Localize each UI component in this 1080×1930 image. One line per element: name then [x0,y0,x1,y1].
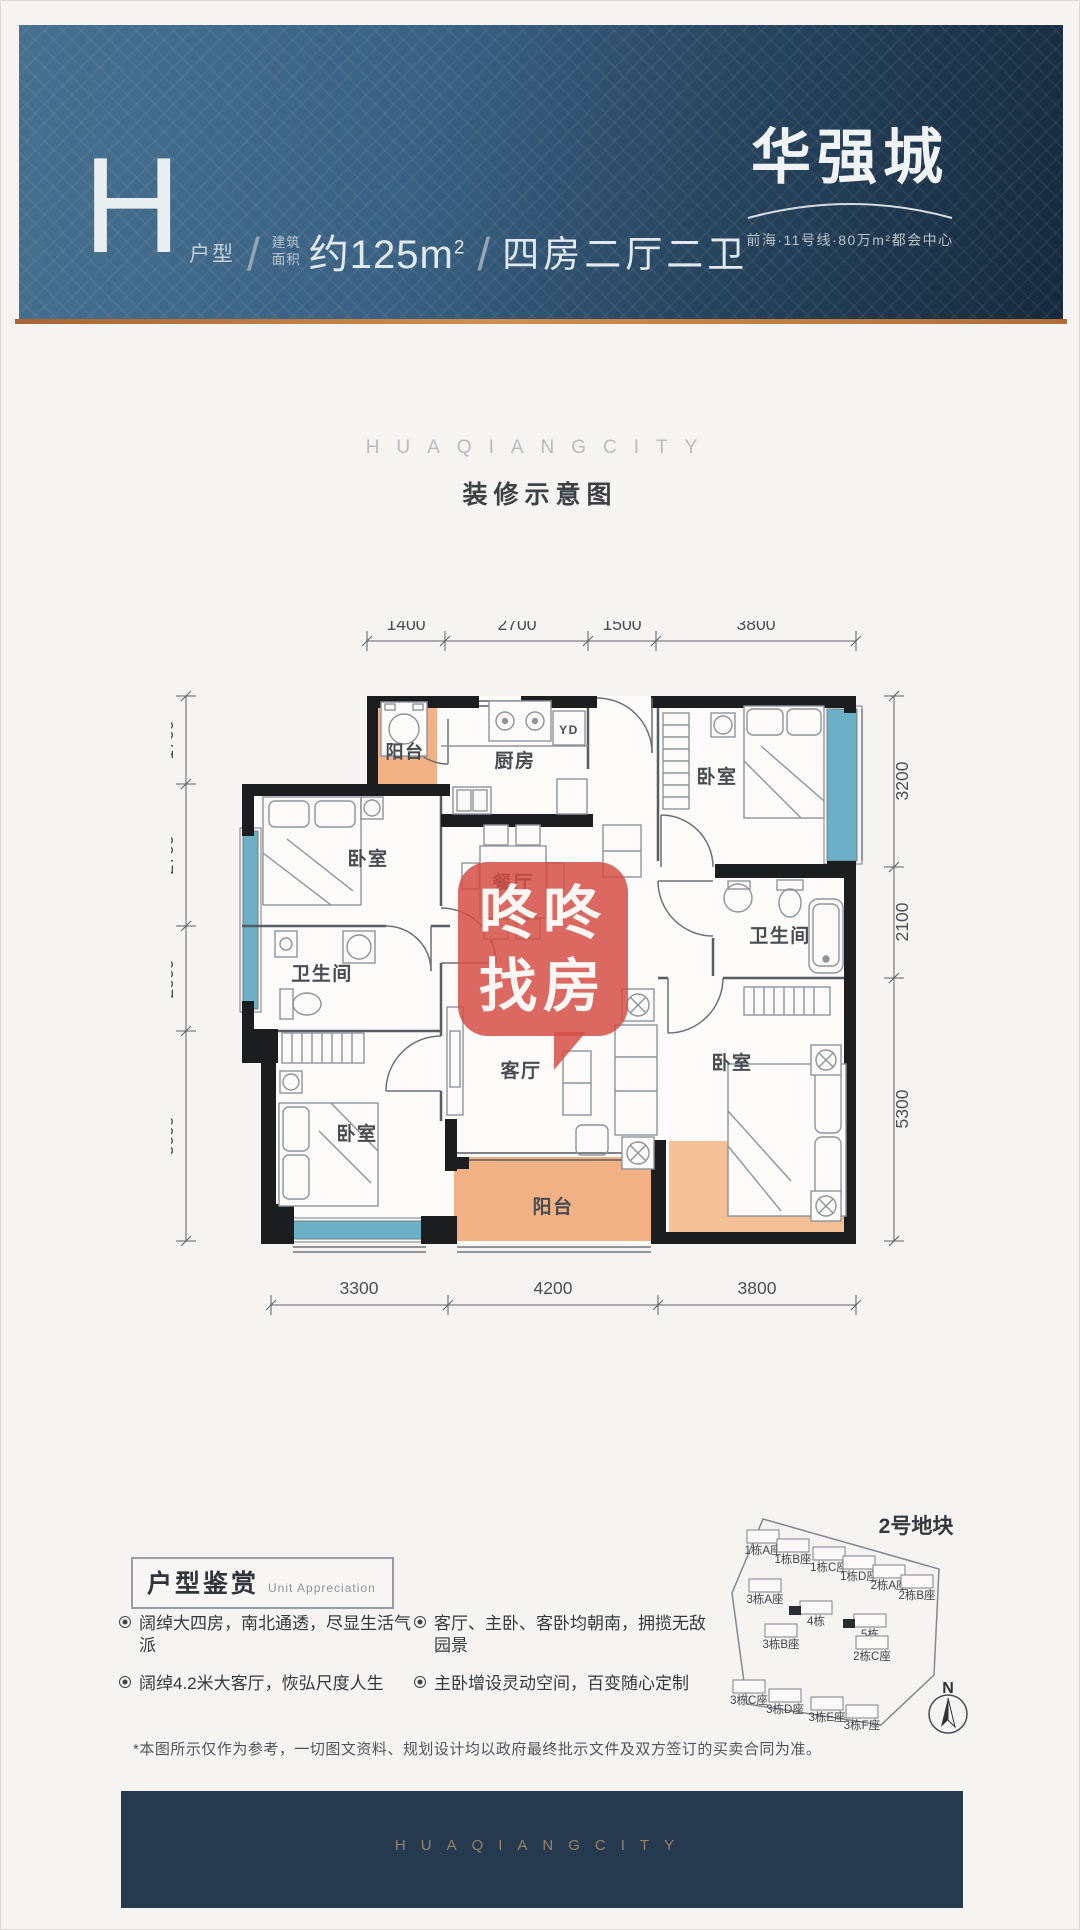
building-label: 4栋 [807,1614,825,1628]
area-label-line1: 建筑 [272,234,301,252]
room-label: 卫生间 [749,924,811,947]
building-label: 3栋B座 [762,1637,799,1651]
site-plan-title: 2号地块 [879,1514,955,1538]
feature-bullet: 阔绰4.2米大客厅，恢弘尺度人生 [119,1673,414,1695]
dimension-label: 2700 [498,621,537,634]
bullet-text: 阔绰大四房，南北通透，尽显生活气派 [139,1613,414,1657]
dimension-label: 3800 [738,1278,777,1298]
appreciation-box: 户型鉴赏 Unit Appreciation [131,1557,394,1609]
brand-tagline: 前海·11号线·80万m²都会中心 [695,230,1005,250]
appreciation-subtitle: Unit Appreciation [268,1581,376,1595]
dimension-label: 3800 [737,621,776,634]
divider-rule [15,319,1067,324]
watermark-bubble: 咚咚 找房 [458,862,628,1036]
room-label: 厨房 [494,749,535,772]
building-footprint [901,1575,933,1588]
bullet-icon [414,1676,426,1688]
building-label: 3栋D座 [766,1702,804,1716]
building-footprint [843,1556,875,1569]
feature-bullet: 客厅、主卧、客卧均朝南，拥揽无敌园景 [414,1613,709,1657]
footer-banner: HUAQIANGCITY [121,1791,963,1908]
dimension-label: 3600 [171,1116,177,1155]
building-footprint [777,1539,809,1552]
unit-type-label: 户型 [189,238,235,275]
header-banner: H 户型 / 建筑 面积 约125m2 / 四房二厅二卫 华强城 前海·11号线… [19,25,1063,319]
building-label: 2栋B座 [898,1588,935,1602]
area-label: 建筑 面积 [272,234,301,275]
bullet-icon [119,1676,131,1688]
building-footprint [749,1579,781,1592]
brand-watermark-en: HUAQIANGCITY [1,437,1079,459]
building-footprint [765,1624,797,1637]
room-label: 阳台 [386,741,425,762]
dimension-label: 2100 [892,902,912,941]
bullet-text: 阔绰4.2米大客厅，恢弘尺度人生 [139,1673,384,1695]
building-footprint [733,1680,765,1693]
area-exponent: 2 [454,238,466,259]
room-label: 卧室 [711,1051,752,1074]
building-footprint [811,1697,843,1710]
building-footprint [854,1614,886,1627]
bullet-icon [119,1616,131,1628]
area-value: 约125m2 [309,235,466,275]
dimension-label: 3300 [340,1278,379,1298]
building-label: 3栋A座 [746,1592,783,1606]
room-label: 客厅 [500,1059,541,1082]
watermark-line1: 咚咚 [458,878,628,951]
dimension-label: 4200 [534,1278,573,1298]
room-label: YD [559,723,579,737]
building-footprint [800,1601,832,1614]
building-footprint [846,1705,878,1718]
building-footprint [747,1530,779,1543]
room-label: 卧室 [347,847,388,870]
watermark-tail [554,1032,586,1070]
room-label: 卫生间 [291,962,353,985]
bullet-text: 客厅、主卧、客卧均朝南，拥揽无敌园景 [434,1613,709,1657]
brand-arc-icon [740,198,960,222]
dimension-label: 1400 [387,621,426,634]
dimension-label: 5300 [892,1089,912,1128]
separator-slash: / [477,234,490,275]
building-footprint [856,1636,888,1649]
building-label: 2栋C座 [853,1649,891,1663]
building-footprint [769,1689,801,1702]
room-label: 卧室 [336,1122,377,1145]
watermark-line2: 找房 [458,951,628,1024]
north-label: N [942,1680,954,1697]
site-plan: 2号地块 1栋A座1栋B座1栋C座1栋D座2栋A座2栋B座3栋A座4栋5栋3栋B… [691,1481,1021,1751]
separator-slash: / [247,234,260,275]
dimension-label: 1700 [171,720,177,759]
brand-logo-text: 华强城 [695,109,1005,196]
area-label-line2: 面积 [272,251,301,269]
footer-brand-en: HUAQIANGCITY [121,1837,963,1854]
feature-bullets: 阔绰大四房，南北通透，尽显生活气派 客厅、主卧、客卧均朝南，拥揽无敌园景 阔绰4… [119,1613,709,1695]
appreciation-title: 户型鉴赏 [147,1564,259,1600]
dimension-label: 3200 [892,761,912,800]
dimension-label: 1500 [603,621,642,634]
dimension-label: 2700 [171,835,177,874]
disclaimer-text: *本图所示仅作为参考，一切图文资料、规划设计均以政府最终批示文件及双方签订的买卖… [133,1738,821,1759]
dimension-label: 2000 [171,959,177,998]
building-label: 3栋F座 [844,1718,880,1732]
brand-block: 华强城 前海·11号线·80万m²都会中心 [695,109,1005,250]
flyer-page: H 户型 / 建筑 面积 约125m2 / 四房二厅二卫 华强城 前海·11号线… [0,0,1080,1930]
plan-caption: 装修示意图 [1,475,1079,511]
area-number: 约125m [309,233,454,277]
room-label: 阳台 [532,1195,573,1218]
building-footprint [873,1565,905,1578]
building-footprint [813,1547,845,1560]
building-marker [789,1606,801,1615]
bullet-icon [414,1616,426,1628]
feature-bullet: 主卧增设灵动空间，百变随心定制 [414,1673,709,1695]
unit-spec-row: 户型 / 建筑 面积 约125m2 / 四房二厅二卫 [189,234,748,275]
building-marker [843,1619,855,1628]
north-compass-icon: N [929,1680,967,1733]
building-label: 3栋E座 [808,1710,845,1724]
unit-letter: H [83,137,181,273]
building-label: 3栋C座 [730,1693,768,1707]
feature-bullet: 阔绰大四房，南北通透，尽显生活气派 [119,1613,414,1657]
room-label: 卧室 [696,765,737,788]
building-label: 1栋B座 [774,1552,811,1566]
bullet-text: 主卧增设灵动空间，百变随心定制 [434,1673,689,1695]
